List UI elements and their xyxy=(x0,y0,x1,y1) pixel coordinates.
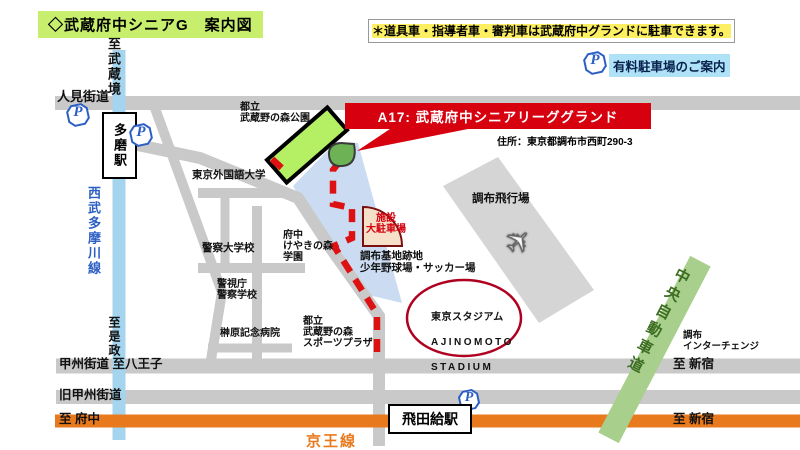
tobitakyu-station-label: 飛田給駅 xyxy=(402,409,458,429)
chofu-interchange-label: 調布 インターチェンジ xyxy=(683,330,759,352)
place-chofu-airfield: 調布飛行場 xyxy=(472,194,530,205)
road-label-kyu-koshu-kaido: 旧甲州街道 xyxy=(59,390,122,401)
parking-icon: P xyxy=(129,123,153,147)
destination-marker-icon xyxy=(329,143,355,166)
seibu-tamagawa-line xyxy=(113,50,126,440)
parking-icon: P xyxy=(583,51,607,75)
tobitakyu-station-box: 飛田給駅 xyxy=(388,404,472,434)
road-label-koshu-kaido: 甲州街道 至八王子 xyxy=(59,359,162,370)
direction-to-musashisakai: 至武蔵境 xyxy=(108,37,119,97)
parking-icon: P xyxy=(66,103,90,127)
notice-box: ＊道具車・指導者車・審判車は武蔵府中グランドに駐車できます。 xyxy=(368,19,735,43)
tama-station-label: 多磨駅 xyxy=(110,123,129,168)
place-keyakinomori-gakuen: 府中 けやきの森 学園 xyxy=(283,230,333,263)
place-sports-plaza: 都立 武蔵野の森 スポーツプラザ xyxy=(303,316,373,349)
place-police-university: 警察大学校 xyxy=(202,243,255,254)
destination-banner: A17: 武蔵府中シニアリーググランド xyxy=(345,103,651,129)
place-mpd-police-school: 警視庁 警察学校 xyxy=(217,279,257,301)
banner-callout-pointer xyxy=(357,129,468,151)
place-sakakibara-hospital: 榊原記念病院 xyxy=(220,328,280,339)
keio-line-label: 京王線 xyxy=(306,430,357,450)
page-title: ◇武蔵府中シニアG 案内図 xyxy=(38,11,263,38)
road-label-hitomi-kaido: 人見街道 xyxy=(57,91,109,102)
destination-address: 住所：東京都調布市西町290-3 xyxy=(497,133,633,148)
place-ajinomoto-stadium: 東京スタジアム AJINOMOTO STADIUM xyxy=(431,299,514,374)
paid-parking-label: 有料駐車場のご案内 xyxy=(609,54,730,77)
place-tokyo-univ-foreign-studies: 東京外国語大学 xyxy=(192,170,266,181)
direction-to-fuchu: 至 府中 xyxy=(59,414,100,425)
notice-text: ＊道具車・指導者車・審判車は武蔵府中グランドに駐車できます。 xyxy=(372,24,731,38)
place-musashino-park: 都立 武蔵野の森公園 xyxy=(240,102,310,124)
facility-parking-label: 施設 大駐車場 xyxy=(366,213,406,235)
direction-to-shinjuku-upper: 至 新宿 xyxy=(673,359,714,370)
direction-to-koremasa: 至是政 xyxy=(108,316,119,358)
west-diagonal-road xyxy=(152,100,222,360)
direction-to-shinjuku-lower: 至 新宿 xyxy=(673,414,714,425)
seibu-tamagawa-line-label: 西武多摩川線 xyxy=(88,186,99,281)
place-chofu-base-site: 調布基地跡地 少年野球場・サッカー場 xyxy=(360,250,476,274)
map-canvas: ◇武蔵府中シニアG 案内図 ＊道具車・指導者車・審判車は武蔵府中グランドに駐車で… xyxy=(0,0,800,450)
